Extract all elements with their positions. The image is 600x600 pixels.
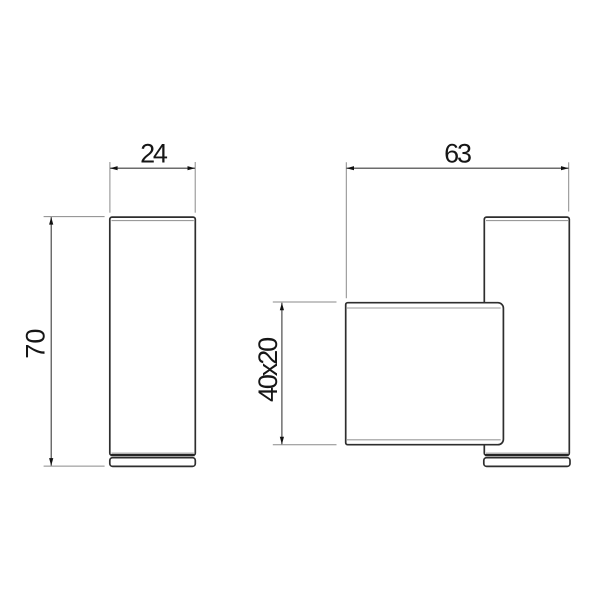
svg-text:40x20: 40x20 (253, 338, 283, 402)
svg-text:70: 70 (19, 328, 50, 358)
svg-text:63: 63 (444, 138, 471, 168)
svg-text:24: 24 (140, 138, 168, 168)
